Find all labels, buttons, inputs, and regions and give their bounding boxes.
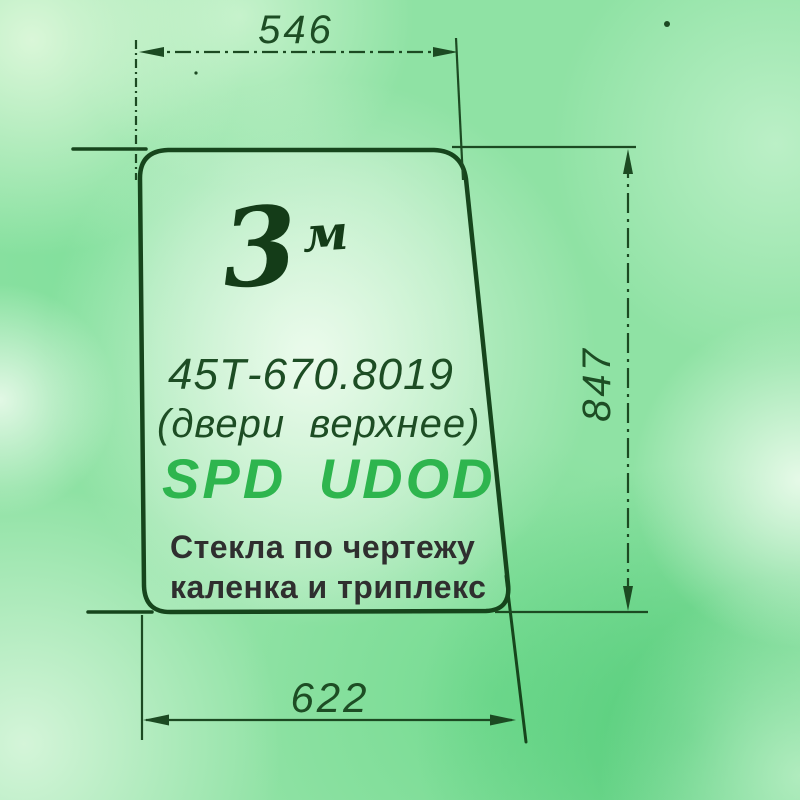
part-number: 45Т-670.8019 xyxy=(168,350,454,400)
right-edge-overshoot xyxy=(506,576,526,742)
glass-note: Стекла по чертежу каленка и триплекс xyxy=(170,527,486,607)
dimension-bottom-width-label: 622 xyxy=(250,674,410,722)
handwritten-quantity: 3м xyxy=(219,192,352,301)
ink-speck-top-left xyxy=(194,71,197,74)
dim847-arrow-bottom xyxy=(623,586,633,611)
dimension-right-height-label: 847 xyxy=(575,304,619,464)
glass-note-line1: Стекла по чертежу xyxy=(170,527,486,567)
quantity-value: 3 xyxy=(218,182,302,313)
drawing-photo: 546 847 622 3м 45Т-670.8019 (двери верхн… xyxy=(0,0,800,800)
dim847-arrow-top xyxy=(623,149,633,174)
ink-speck-top-right xyxy=(664,21,670,27)
quantity-unit: м xyxy=(301,205,350,264)
dim622-arrow-left xyxy=(143,715,169,726)
dim546-arrow-left xyxy=(139,47,164,57)
dimension-top-width-label: 546 xyxy=(216,8,376,53)
part-description: (двери верхнее) xyxy=(157,402,480,447)
brand-watermark: SPD UDOD xyxy=(162,446,496,511)
dim546-arrow-right xyxy=(433,47,458,57)
glass-note-line2: каленка и триплекс xyxy=(170,567,486,607)
dim622-arrow-right xyxy=(490,715,516,726)
